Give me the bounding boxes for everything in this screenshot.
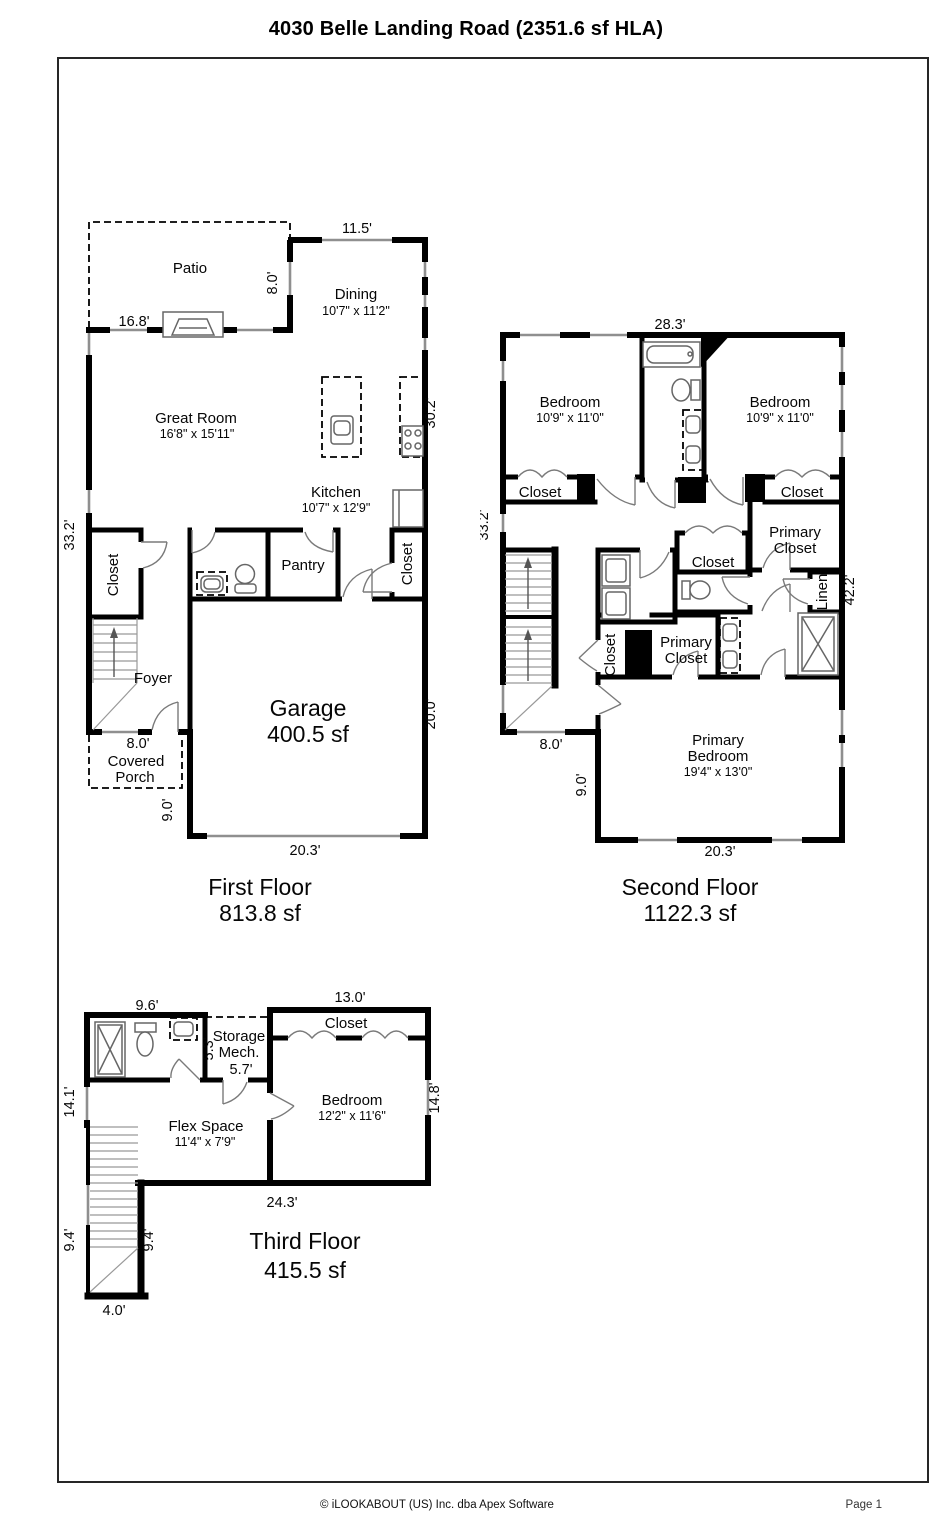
dim-side: 9.0': [160, 798, 176, 821]
primary-vanity-icon: [720, 618, 740, 673]
fridge-icon: [393, 490, 423, 527]
dim-left: 33.2': [480, 509, 492, 540]
dim-left: 14.1': [62, 1086, 78, 1117]
dim-bottom: 24.3': [267, 1195, 298, 1211]
dim-bottom: 20.3': [290, 843, 321, 859]
powder-sink-icon: [201, 576, 223, 592]
third-floor-stairs: [90, 1127, 138, 1292]
pantry-label: Pantry: [281, 557, 325, 574]
dim-closet-width: 13.0': [335, 990, 366, 1006]
closet-left-label: Closet: [519, 484, 562, 501]
primary-closet-tr-1: Primary: [769, 524, 821, 541]
dim-storage-depth: 5.3': [201, 1037, 217, 1060]
footer-copyright: © iLOOKABOUT (US) Inc. dba Apex Software: [320, 1499, 554, 1511]
closet-right-label: Closet: [399, 542, 416, 585]
stove-icon: [402, 426, 423, 456]
powder-toilet-icon: [235, 565, 256, 594]
third-shower-icon: [95, 1022, 125, 1077]
closet-small-label: Closet: [602, 633, 619, 676]
first-floor-stairs: [93, 618, 137, 730]
porch-label-2: Porch: [115, 769, 154, 786]
dim-right-upper: 30.2': [423, 397, 439, 428]
closet-right-label: Closet: [781, 484, 824, 501]
second-floor-title: Second Floor: [622, 874, 759, 900]
porch-label-1: Covered: [108, 753, 165, 770]
flex-space-size: 11'4" x 7'9": [175, 1135, 236, 1149]
dim-top: 28.3': [655, 317, 686, 333]
primary-closet-tr-2: Closet: [774, 540, 817, 557]
second-floor-area: 1122.3 sf: [644, 900, 738, 926]
third-floor-title: Third Floor: [249, 1228, 361, 1254]
tub-icon: [643, 342, 700, 367]
dim-right: 42.2': [842, 574, 858, 605]
second-floor-stairs: [505, 555, 552, 730]
dim-patio-depth: 8.0': [265, 271, 281, 294]
linen-label: Linen: [814, 574, 831, 611]
dim-right: 14.8': [427, 1082, 443, 1113]
shower-icon: [798, 613, 838, 675]
bath-vanity-icon: [683, 410, 703, 470]
third-toilet-icon: [135, 1023, 156, 1056]
dining-size: 10'7" x 11'2": [322, 304, 390, 318]
primary-closet-2: Closet: [665, 650, 708, 667]
kitchen-sink-icon: [331, 416, 353, 444]
dim-side: 9.0': [574, 773, 590, 796]
footer-page-number: Page 1: [846, 1499, 882, 1511]
primary-bedroom-size: 19'4" x 13'0": [684, 765, 753, 779]
bedroom-right-label: Bedroom: [750, 394, 811, 411]
bedroom-left-size: 10'9" x 11'0": [536, 411, 604, 425]
dim-left: 33.2': [62, 519, 78, 550]
primary-closet-1: Primary: [660, 634, 712, 651]
page-title: 4030 Belle Landing Road (2351.6 sf HLA): [0, 18, 932, 41]
bath-toilet-icon: [672, 379, 700, 401]
dining-label: Dining: [335, 286, 378, 303]
dim-left-bottom: 8.0': [540, 737, 563, 753]
third-floor-area: 415.5 sf: [264, 1257, 346, 1283]
wc-toilet-icon: [682, 581, 710, 599]
dim-stair-bottom: 4.0': [103, 1303, 126, 1319]
great-room-label: Great Room: [155, 410, 237, 427]
kitchen-size: 10'7" x 12'9": [302, 501, 371, 515]
dim-stair-left: 9.4': [62, 1228, 78, 1251]
dim-patio-width: 16.8': [119, 314, 150, 330]
garage-area: 400.5 sf: [267, 721, 349, 747]
first-floor-plan: Patio 11.5' 8.0' Dining 10'7" x 11'2" 16…: [60, 215, 450, 925]
storage-label-1: Storage: [213, 1028, 266, 1045]
floor-plan-page: { "title": "4030 Belle Landing Road (235…: [0, 0, 932, 1536]
dim-bath-width: 9.6': [136, 998, 159, 1014]
hall-closet-label: Closet: [692, 554, 735, 571]
great-room-size: 16'8" x 15'11": [160, 427, 235, 441]
first-floor-area: 813.8 sf: [219, 900, 301, 925]
third-floor-plan: 9.6' 13.0' Closet Storage Mech. 5.3' 5.7…: [55, 985, 455, 1330]
foyer-label: Foyer: [134, 670, 172, 687]
bedroom-right-size: 10'9" x 11'0": [746, 411, 814, 425]
bedroom-left-label: Bedroom: [540, 394, 601, 411]
dim-stair-right: 9.4': [141, 1228, 157, 1251]
storage-label-2: Mech.: [219, 1044, 260, 1061]
kitchen-label: Kitchen: [311, 484, 361, 501]
bedroom-label: Bedroom: [322, 1092, 383, 1109]
dim-bottom: 20.3': [705, 844, 736, 860]
washer-dryer-icon: [602, 555, 630, 619]
garage-label: Garage: [270, 695, 347, 721]
first-floor-title: First Floor: [208, 874, 312, 900]
patio-label: Patio: [173, 260, 207, 277]
second-floor-plan: 28.3' Bedroom 10'9" x 11'0" Bedroom 10'9…: [480, 315, 880, 927]
dim-top: 11.5': [342, 221, 372, 237]
third-floor-openings: [83, 1034, 432, 1225]
closet-left-label: Closet: [105, 553, 122, 596]
dim-storage-width: 5.7': [230, 1062, 253, 1078]
third-sink-icon: [174, 1022, 193, 1036]
bedroom-size: 12'2" x 11'6": [318, 1109, 386, 1123]
dim-right-lower: 20.0': [423, 698, 439, 729]
primary-bedroom-2: Bedroom: [688, 748, 749, 765]
flex-space-label: Flex Space: [168, 1118, 243, 1135]
closet-label: Closet: [325, 1015, 368, 1032]
primary-bedroom-1: Primary: [692, 732, 744, 749]
fireplace-icon: [163, 312, 223, 337]
dim-porch: 8.0': [127, 736, 150, 752]
